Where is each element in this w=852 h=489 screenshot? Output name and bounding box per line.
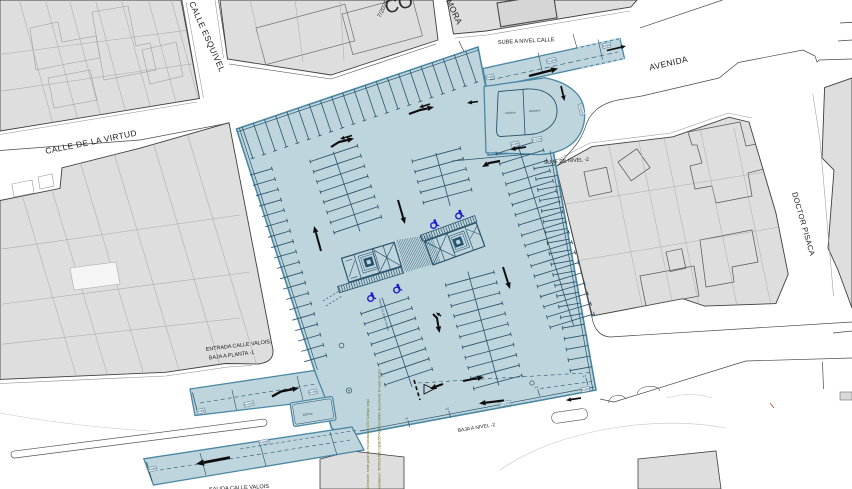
svg-text:Dirección: sede.guiomar.es/val: Dirección: sede.guiomar.es/validacion CS…	[366, 399, 370, 489]
svg-text:Rodadura: Rodadura	[529, 108, 541, 113]
svg-text:Vestíbulo: Vestíbulo	[505, 110, 516, 115]
svg-text:Validación: 55TR20TFE72E8E5574: Validación: 55TR20TFE72E8E5574UMG27ARG d…	[378, 369, 382, 489]
